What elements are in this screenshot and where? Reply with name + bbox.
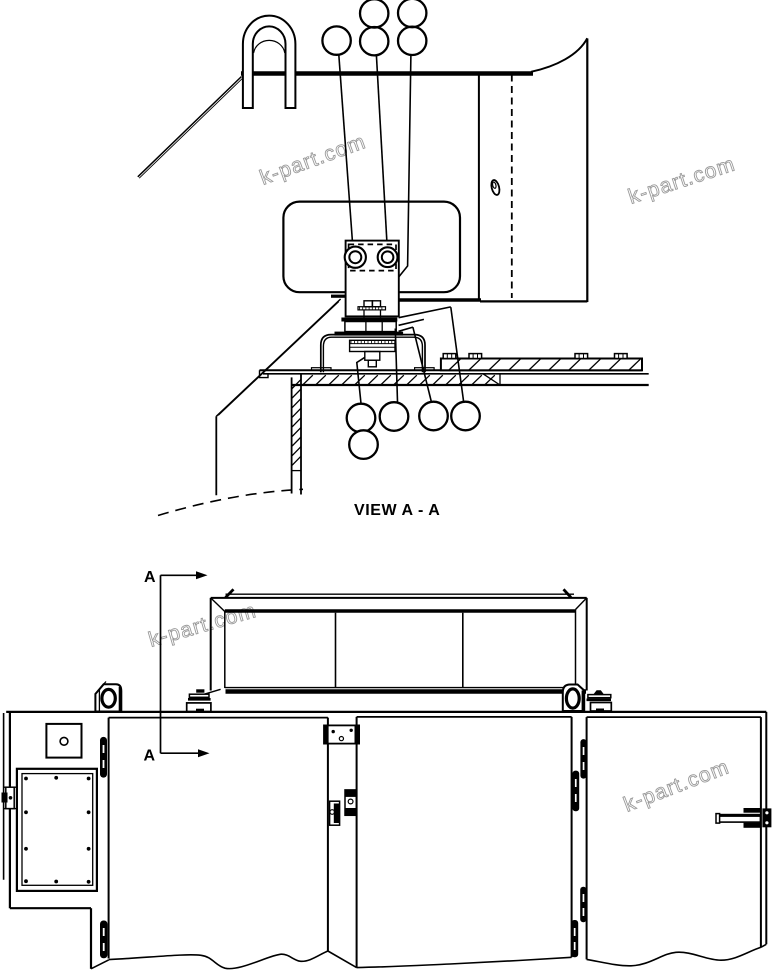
svg-text:A: A	[144, 569, 156, 586]
svg-text:VIEW A - A: VIEW A - A	[354, 502, 440, 519]
svg-text:A: A	[144, 748, 156, 765]
